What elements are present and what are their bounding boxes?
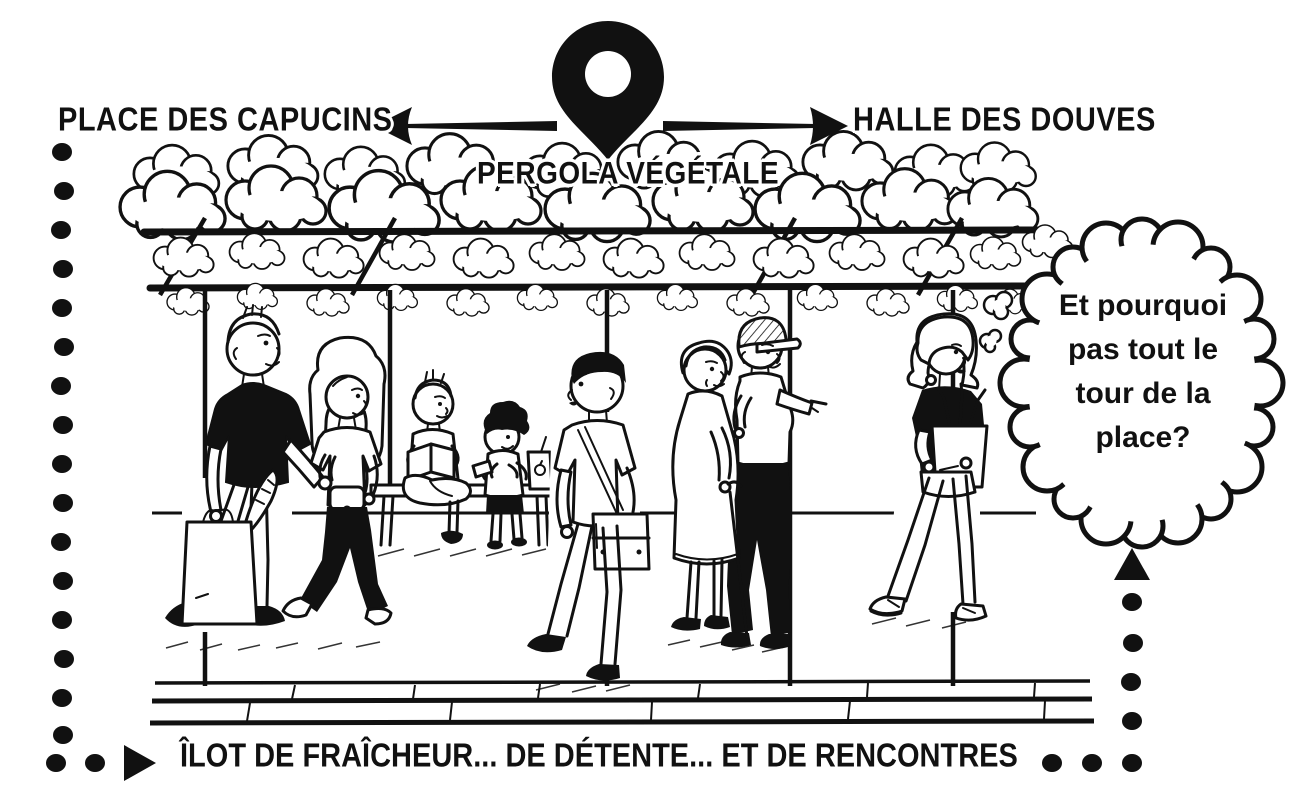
right-dotted-border (1114, 548, 1150, 730)
illustration-canvas: PLACE DES CAPUCINS HALLE DES DOUVES PERG… (0, 0, 1301, 809)
shadow-couple (166, 642, 380, 650)
person-woman-with-groceries (870, 314, 987, 620)
label-halle-des-douves: HALLE DES DOUVES (853, 102, 1156, 140)
bubble-line-1: Et pourquoi (1032, 284, 1254, 328)
person-man-with-messenger-bag (527, 352, 649, 681)
caption-text: ÎLOT DE FRAÎCHEUR... DE DÉTENTE... ET DE… (180, 738, 1018, 776)
person-teen-reading (403, 370, 470, 544)
arrow-right-icon (663, 107, 848, 145)
label-place-des-capucins: PLACE DES CAPUCINS (58, 102, 393, 140)
person-child-with-snack (473, 401, 552, 550)
bubble-line-2: pas tout le (1032, 328, 1254, 372)
bubble-line-3: tour de la (1032, 372, 1254, 416)
triangle-up-icon (1114, 548, 1150, 580)
thought-trail (980, 292, 1012, 352)
person-man-with-tote-bag (165, 305, 323, 632)
thought-bubble-text: Et pourquoi pas tout le tour de la place… (1032, 284, 1254, 460)
triangle-right-icon (124, 745, 156, 781)
label-pergola-vegetale: PERGOLA VÉGÉTALE (477, 155, 779, 191)
left-dotted-border (51, 143, 74, 744)
person-woman-holding-hands (283, 337, 391, 624)
shadow-center-man (536, 684, 630, 692)
bubble-line-4: place? (1032, 416, 1254, 460)
